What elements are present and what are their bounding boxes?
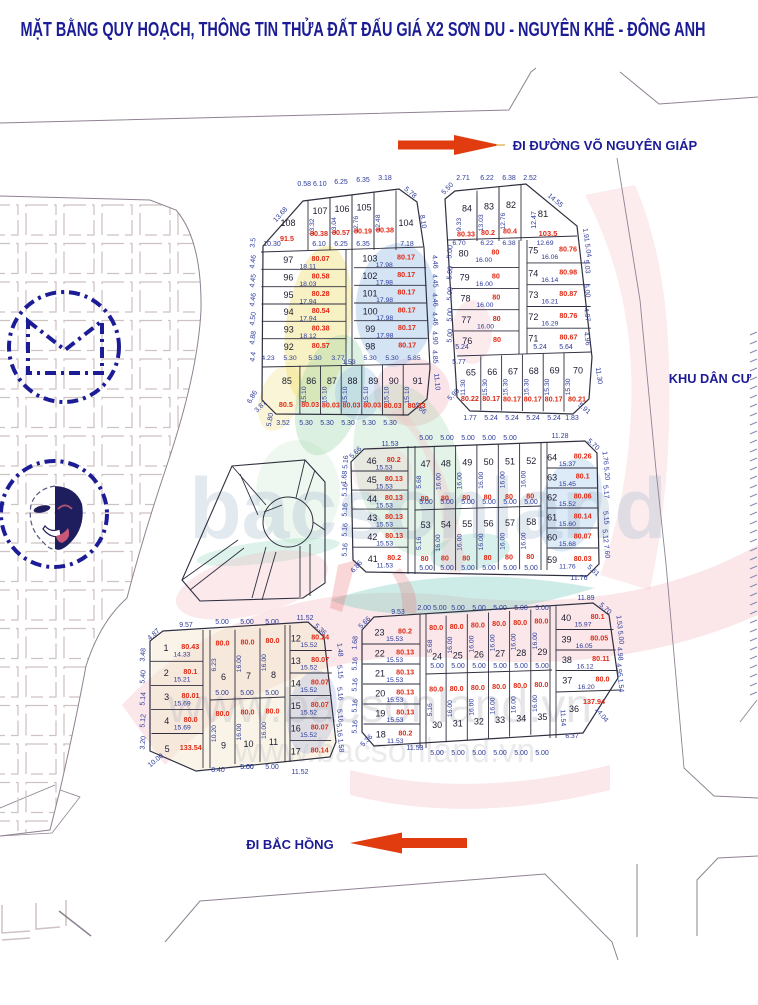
- svg-text:4.4: 4.4: [249, 351, 257, 362]
- svg-text:5.30: 5.30: [308, 355, 321, 362]
- svg-text:11.76: 11.76: [559, 564, 576, 571]
- svg-text:5.00: 5.00: [503, 435, 517, 442]
- svg-text:80.0: 80.0: [492, 619, 506, 628]
- svg-text:137.94: 137.94: [583, 697, 605, 706]
- svg-text:5.77: 5.77: [452, 359, 466, 366]
- svg-text:69: 69: [550, 366, 560, 376]
- svg-text:5.30: 5.30: [299, 420, 313, 427]
- svg-text:16.21: 16.21: [541, 299, 558, 306]
- svg-text:5.16: 5.16: [351, 657, 359, 671]
- svg-text:16.00: 16.00: [511, 633, 518, 650]
- svg-text:72: 72: [528, 312, 538, 322]
- svg-text:15.52: 15.52: [300, 687, 317, 694]
- svg-text:5.00: 5.00: [440, 565, 454, 572]
- svg-text:80.0: 80.0: [184, 715, 198, 724]
- svg-text:16.00: 16.00: [511, 696, 518, 713]
- svg-text:66: 66: [487, 367, 497, 377]
- svg-text:80.17: 80.17: [397, 288, 415, 297]
- svg-text:52: 52: [526, 456, 536, 466]
- svg-text:11.28: 11.28: [552, 433, 569, 440]
- svg-text:84: 84: [462, 204, 472, 214]
- svg-text:5.00: 5.00: [472, 605, 486, 612]
- svg-text:15.52: 15.52: [300, 665, 317, 672]
- svg-text:80: 80: [493, 314, 501, 323]
- svg-text:1.53: 1.53: [342, 359, 355, 366]
- svg-text:80.0: 80.0: [596, 674, 610, 683]
- svg-text:16.00: 16.00: [489, 634, 496, 651]
- svg-text:16.00: 16.00: [447, 700, 454, 717]
- svg-text:6.22: 6.22: [480, 175, 494, 182]
- svg-text:15.52: 15.52: [300, 732, 317, 739]
- svg-text:5.00: 5.00: [215, 619, 229, 626]
- svg-text:80.2: 80.2: [481, 228, 495, 237]
- svg-text:5.12: 5.12: [139, 714, 147, 728]
- svg-text:15.30: 15.30: [565, 378, 572, 395]
- svg-text:15.30: 15.30: [523, 379, 530, 396]
- svg-text:80.17: 80.17: [398, 323, 416, 332]
- svg-text:5.00: 5.00: [524, 565, 538, 572]
- svg-text:80.38: 80.38: [312, 324, 330, 333]
- svg-text:3.5: 3.5: [249, 237, 257, 248]
- svg-text:16.00: 16.00: [532, 695, 539, 712]
- svg-text:19: 19: [375, 709, 385, 719]
- svg-text:15.30: 15.30: [544, 378, 551, 395]
- svg-text:5.00: 5.00: [451, 750, 465, 757]
- svg-text:80.58: 80.58: [312, 272, 330, 281]
- svg-text:3.52: 3.52: [276, 420, 290, 427]
- svg-text:5.00: 5.00: [419, 499, 433, 506]
- svg-text:62: 62: [547, 493, 557, 503]
- svg-text:5.00: 5.00: [535, 605, 549, 612]
- svg-text:5.00: 5.00: [430, 663, 444, 670]
- svg-text:5.00: 5.00: [535, 750, 549, 757]
- svg-text:88: 88: [347, 376, 357, 386]
- svg-text:5.14: 5.14: [139, 692, 147, 706]
- svg-text:6.10: 6.10: [312, 241, 326, 248]
- svg-text:80.07: 80.07: [311, 678, 329, 687]
- svg-text:55: 55: [462, 519, 472, 529]
- svg-text:25: 25: [453, 651, 463, 661]
- svg-text:36: 36: [569, 704, 579, 714]
- svg-text:5.00: 5.00: [461, 565, 475, 572]
- svg-text:6.37: 6.37: [565, 733, 578, 740]
- svg-text:15.53: 15.53: [376, 484, 393, 491]
- svg-text:5.30: 5.30: [385, 355, 398, 362]
- svg-text:15.60: 15.60: [559, 521, 576, 528]
- svg-text:98: 98: [365, 342, 375, 352]
- svg-text:80.11: 80.11: [592, 654, 610, 663]
- svg-text:6.35: 6.35: [356, 177, 370, 184]
- svg-text:99: 99: [365, 324, 375, 334]
- svg-text:16.05: 16.05: [576, 643, 593, 650]
- svg-text:80.13: 80.13: [385, 531, 403, 540]
- svg-text:80: 80: [462, 553, 470, 562]
- svg-text:15.53: 15.53: [376, 541, 393, 548]
- svg-text:82: 82: [506, 200, 516, 210]
- svg-text:80.38: 80.38: [376, 226, 394, 235]
- svg-text:15.37: 15.37: [559, 461, 576, 468]
- svg-text:15.53: 15.53: [387, 717, 404, 724]
- svg-text:97: 97: [283, 255, 293, 265]
- svg-text:80.17: 80.17: [503, 394, 521, 403]
- svg-text:16.00: 16.00: [476, 281, 493, 288]
- svg-text:27: 27: [495, 649, 505, 659]
- svg-text:KHU DÂN CƯ: KHU DÂN CƯ: [669, 371, 752, 386]
- svg-text:5.00: 5.00: [419, 565, 433, 572]
- svg-text:79: 79: [460, 273, 470, 283]
- svg-text:5.16: 5.16: [341, 543, 349, 557]
- svg-text:5.00: 5.00: [482, 435, 496, 442]
- svg-text:4: 4: [164, 716, 169, 726]
- svg-text:5.00: 5.00: [503, 565, 517, 572]
- svg-text:11.52: 11.52: [292, 769, 309, 776]
- svg-text:5.24: 5.24: [455, 344, 469, 351]
- svg-text:34: 34: [516, 714, 526, 724]
- svg-text:16.00: 16.00: [521, 470, 528, 487]
- svg-text:9.57: 9.57: [179, 622, 193, 629]
- svg-text:ĐI ĐƯỜNG VÕ NGUYÊN GIÁP: ĐI ĐƯỜNG VÕ NGUYÊN GIÁP: [513, 138, 698, 153]
- svg-text:15.97: 15.97: [574, 621, 591, 628]
- svg-text:80.33: 80.33: [457, 229, 475, 238]
- svg-text:5.00: 5.00: [430, 750, 444, 757]
- svg-text:1.83: 1.83: [565, 415, 579, 422]
- svg-text:5.68: 5.68: [427, 639, 434, 652]
- svg-text:78: 78: [460, 294, 470, 304]
- svg-text:5.16: 5.16: [416, 536, 423, 549]
- svg-text:5.00: 5.00: [446, 308, 454, 322]
- svg-text:10.20: 10.20: [211, 725, 218, 742]
- svg-text:5.16: 5.16: [335, 709, 343, 723]
- svg-text:70: 70: [573, 365, 583, 375]
- svg-text:22: 22: [375, 649, 385, 659]
- svg-text:12: 12: [291, 634, 301, 644]
- svg-text:5.00: 5.00: [535, 663, 549, 670]
- svg-text:48: 48: [441, 458, 451, 468]
- svg-text:5.00: 5.00: [503, 499, 517, 506]
- svg-text:5.00: 5.00: [493, 663, 507, 670]
- svg-text:16.00: 16.00: [468, 635, 475, 652]
- svg-text:11.52: 11.52: [297, 615, 314, 622]
- svg-text:80: 80: [441, 554, 449, 563]
- svg-text:5.17: 5.17: [601, 485, 609, 499]
- svg-text:5.00: 5.00: [493, 605, 507, 612]
- svg-text:51: 51: [505, 456, 515, 466]
- svg-text:16.00: 16.00: [477, 323, 494, 330]
- svg-text:5.00: 5.00: [493, 750, 507, 757]
- svg-text:80.98: 80.98: [559, 267, 577, 276]
- svg-text:6.25: 6.25: [334, 179, 348, 186]
- svg-text:ĐI BẮC HỒNG: ĐI BẮC HỒNG: [246, 837, 333, 852]
- svg-text:80.0: 80.0: [450, 684, 464, 693]
- svg-text:80.13: 80.13: [385, 474, 403, 483]
- svg-text:11.53: 11.53: [377, 563, 394, 570]
- svg-text:81: 81: [538, 209, 549, 220]
- svg-text:16.00: 16.00: [468, 699, 475, 716]
- svg-text:80.38: 80.38: [310, 229, 328, 238]
- svg-text:7: 7: [246, 671, 251, 681]
- svg-text:5.00: 5.00: [451, 605, 465, 612]
- svg-text:57: 57: [505, 518, 515, 528]
- svg-text:8: 8: [271, 670, 276, 680]
- svg-text:80.13: 80.13: [385, 512, 403, 521]
- svg-text:11: 11: [269, 737, 278, 747]
- svg-text:80.17: 80.17: [397, 270, 415, 279]
- svg-text:39: 39: [561, 634, 571, 644]
- svg-text:MẶT BẰNG QUY HOẠCH, THÔNG TIN: MẶT BẰNG QUY HOẠCH, THÔNG TIN THỬA ĐẤT Đ…: [21, 17, 706, 41]
- svg-text:80.01: 80.01: [182, 691, 200, 700]
- svg-text:106: 106: [334, 204, 349, 214]
- svg-text:16.00: 16.00: [521, 532, 528, 549]
- svg-text:80.1: 80.1: [576, 472, 590, 481]
- svg-text:80.0: 80.0: [471, 683, 485, 692]
- svg-text:14.33: 14.33: [173, 652, 190, 659]
- svg-text:18: 18: [376, 730, 386, 740]
- svg-text:5.16: 5.16: [351, 699, 359, 713]
- svg-text:5.24: 5.24: [547, 415, 561, 422]
- svg-text:16.00: 16.00: [475, 257, 492, 264]
- svg-text:80.0: 80.0: [534, 617, 548, 626]
- svg-text:3.18: 3.18: [378, 175, 392, 182]
- svg-text:75: 75: [528, 246, 538, 256]
- svg-text:16.00: 16.00: [435, 534, 442, 551]
- svg-text:15.52: 15.52: [559, 501, 576, 508]
- svg-text:90: 90: [389, 376, 399, 386]
- svg-text:16.06: 16.06: [541, 254, 558, 261]
- svg-text:5.00: 5.00: [446, 266, 454, 280]
- svg-text:54: 54: [441, 520, 451, 530]
- svg-text:80.07: 80.07: [311, 700, 329, 709]
- svg-text:74: 74: [528, 268, 538, 278]
- svg-text:16.12: 16.12: [577, 663, 594, 670]
- svg-text:5.16: 5.16: [341, 483, 349, 497]
- svg-text:11.89: 11.89: [578, 595, 595, 602]
- svg-text:5.00: 5.00: [265, 690, 279, 697]
- svg-text:80.4: 80.4: [503, 227, 517, 236]
- svg-text:11.53: 11.53: [382, 441, 399, 448]
- svg-text:80.03: 80.03: [363, 401, 381, 410]
- svg-text:35: 35: [537, 712, 547, 722]
- svg-text:83: 83: [484, 202, 494, 212]
- svg-text:80.87: 80.87: [559, 289, 577, 298]
- svg-text:5.15: 5.15: [601, 511, 609, 525]
- svg-text:4.46: 4.46: [430, 255, 438, 269]
- svg-text:5.68: 5.68: [416, 475, 423, 488]
- svg-text:11.10: 11.10: [432, 373, 440, 391]
- svg-text:59: 59: [547, 555, 557, 565]
- svg-text:4.46: 4.46: [430, 312, 438, 326]
- svg-text:80.07: 80.07: [311, 655, 329, 664]
- svg-text:80.2: 80.2: [398, 729, 412, 738]
- svg-text:5.15: 5.15: [335, 665, 343, 679]
- svg-text:80.06: 80.06: [574, 492, 592, 501]
- svg-text:5.00: 5.00: [265, 764, 279, 771]
- svg-text:5.00: 5.00: [419, 435, 433, 442]
- svg-text:80.07: 80.07: [574, 532, 592, 541]
- svg-text:87: 87: [327, 376, 337, 386]
- svg-text:1: 1: [163, 643, 168, 653]
- svg-text:80.03: 80.03: [574, 554, 592, 563]
- svg-text:23: 23: [374, 628, 384, 638]
- svg-text:133.54: 133.54: [180, 743, 202, 752]
- svg-text:16.00: 16.00: [532, 632, 539, 649]
- svg-text:16.20: 16.20: [578, 684, 595, 691]
- svg-text:80.03: 80.03: [322, 400, 340, 409]
- svg-text:3.48: 3.48: [139, 648, 147, 662]
- svg-text:94: 94: [284, 307, 294, 317]
- svg-text:80.2: 80.2: [387, 455, 401, 464]
- svg-text:2.00 5.00: 2.00 5.00: [417, 605, 446, 612]
- svg-text:5.85: 5.85: [407, 355, 420, 362]
- svg-text:0.58 6.10: 0.58 6.10: [297, 181, 326, 188]
- svg-text:16.00: 16.00: [435, 473, 442, 490]
- svg-text:71: 71: [528, 334, 538, 344]
- svg-text:5.00: 5.00: [265, 619, 279, 626]
- svg-text:80.05: 80.05: [590, 633, 608, 642]
- svg-text:4.23: 4.23: [261, 355, 274, 362]
- svg-text:80.67: 80.67: [560, 333, 578, 342]
- svg-text:80: 80: [505, 553, 513, 562]
- svg-text:80.13: 80.13: [396, 668, 414, 677]
- svg-text:58: 58: [526, 517, 536, 527]
- svg-text:2: 2: [164, 668, 169, 678]
- svg-text:15.68: 15.68: [559, 541, 576, 548]
- svg-text:29: 29: [537, 647, 547, 657]
- svg-text:80.19: 80.19: [354, 227, 372, 236]
- svg-text:5.00: 5.00: [440, 499, 454, 506]
- svg-text:16.00: 16.00: [457, 534, 464, 551]
- svg-text:5.00: 5.00: [461, 435, 475, 442]
- svg-text:93: 93: [284, 325, 294, 335]
- svg-text:16.00: 16.00: [478, 533, 485, 550]
- svg-text:3: 3: [164, 692, 169, 702]
- svg-text:80.0: 80.0: [513, 681, 527, 690]
- svg-text:15.53: 15.53: [386, 636, 403, 643]
- svg-text:16.00: 16.00: [490, 697, 497, 714]
- svg-text:67: 67: [508, 367, 518, 377]
- svg-text:80: 80: [493, 335, 501, 344]
- svg-text:5.24: 5.24: [484, 415, 498, 422]
- svg-text:80.0: 80.0: [450, 622, 464, 631]
- svg-text:80.0: 80.0: [216, 639, 230, 648]
- svg-text:80.13: 80.13: [385, 493, 403, 502]
- svg-text:5.00: 5.00: [446, 287, 454, 301]
- svg-text:80.2: 80.2: [387, 553, 401, 562]
- svg-text:73: 73: [528, 290, 538, 300]
- svg-text:5.00: 5.00: [446, 329, 454, 343]
- svg-text:5.30: 5.30: [383, 420, 397, 427]
- svg-text:80.0: 80.0: [471, 621, 485, 630]
- svg-text:60: 60: [547, 533, 557, 543]
- svg-text:26: 26: [474, 650, 484, 660]
- svg-text:80.57: 80.57: [332, 228, 350, 237]
- svg-text:65: 65: [466, 367, 476, 377]
- svg-text:89: 89: [368, 376, 378, 386]
- svg-text:80: 80: [421, 554, 429, 563]
- svg-text:16.00: 16.00: [478, 472, 485, 489]
- svg-text:5.00: 5.00: [240, 690, 254, 697]
- svg-text:80.0: 80.0: [429, 685, 443, 694]
- svg-text:11.76: 11.76: [571, 575, 588, 582]
- svg-text:80.13: 80.13: [396, 708, 414, 717]
- svg-text:5.16: 5.16: [341, 523, 349, 537]
- svg-text:80.26: 80.26: [574, 452, 592, 461]
- svg-text:5.00: 5.00: [514, 605, 528, 612]
- svg-text:21: 21: [375, 669, 385, 679]
- svg-text:80.2: 80.2: [398, 627, 412, 636]
- svg-text:32: 32: [474, 717, 484, 727]
- svg-text:80.5: 80.5: [279, 400, 293, 409]
- svg-text:4.45: 4.45: [430, 274, 438, 288]
- svg-text:5.30: 5.30: [363, 355, 376, 362]
- svg-text:15.53: 15.53: [376, 522, 393, 529]
- svg-text:5.16: 5.16: [335, 687, 343, 701]
- svg-text:80.17: 80.17: [398, 305, 416, 314]
- svg-text:105: 105: [356, 203, 371, 213]
- svg-text:11.53: 11.53: [407, 745, 424, 752]
- svg-text:31: 31: [453, 718, 463, 728]
- svg-text:47: 47: [421, 459, 431, 469]
- svg-text:104: 104: [398, 218, 413, 228]
- svg-text:15.69: 15.69: [174, 700, 191, 707]
- svg-text:16.00: 16.00: [236, 723, 243, 740]
- svg-text:80.0: 80.0: [429, 623, 443, 632]
- svg-text:5.00: 5.00: [440, 435, 454, 442]
- svg-text:80.14: 80.14: [311, 746, 329, 755]
- svg-text:80.57: 80.57: [312, 341, 330, 350]
- svg-text:80.0: 80.0: [216, 709, 230, 718]
- svg-text:5.00: 5.00: [461, 499, 475, 506]
- svg-text:80.1: 80.1: [183, 667, 197, 676]
- svg-text:5.00: 5.00: [240, 619, 254, 626]
- svg-text:80.03: 80.03: [384, 401, 402, 410]
- svg-text:12.47: 12.47: [531, 211, 538, 229]
- svg-text:4.90: 4.90: [430, 331, 438, 345]
- svg-text:5.00: 5.00: [514, 750, 528, 757]
- svg-text:80.17: 80.17: [482, 394, 500, 403]
- svg-text:80.07: 80.07: [312, 254, 330, 263]
- svg-text:5.24: 5.24: [533, 344, 547, 351]
- svg-text:80.76: 80.76: [559, 245, 577, 254]
- svg-text:80.54: 80.54: [312, 306, 330, 315]
- svg-text:80.0: 80.0: [534, 680, 548, 689]
- svg-text:80: 80: [526, 552, 534, 561]
- svg-text:5.00: 5.00: [524, 499, 538, 506]
- svg-text:63: 63: [547, 473, 557, 483]
- svg-text:68: 68: [529, 366, 539, 376]
- svg-text:15.45: 15.45: [559, 481, 576, 488]
- svg-text:80.07: 80.07: [311, 723, 329, 732]
- svg-text:4.85: 4.85: [430, 350, 438, 364]
- svg-text:5.00: 5.00: [514, 663, 528, 670]
- svg-text:1.68: 1.68: [351, 636, 359, 650]
- svg-text:91.5: 91.5: [280, 234, 294, 243]
- svg-text:16.00: 16.00: [261, 654, 268, 671]
- svg-text:80.17: 80.17: [397, 252, 415, 261]
- svg-text:17: 17: [291, 747, 301, 757]
- svg-text:6: 6: [221, 672, 226, 682]
- svg-text:80.13: 80.13: [396, 648, 414, 657]
- svg-text:80.0: 80.0: [492, 682, 506, 691]
- svg-text:6.25: 6.25: [334, 241, 348, 248]
- svg-text:4.46: 4.46: [430, 293, 438, 307]
- svg-text:80: 80: [491, 248, 499, 257]
- svg-text:16.00: 16.00: [236, 655, 243, 672]
- svg-text:9.53: 9.53: [391, 609, 405, 616]
- svg-text:80.0: 80.0: [241, 637, 255, 646]
- svg-text:80.0: 80.0: [513, 618, 527, 627]
- svg-text:108: 108: [280, 218, 295, 228]
- svg-text:50: 50: [484, 457, 494, 467]
